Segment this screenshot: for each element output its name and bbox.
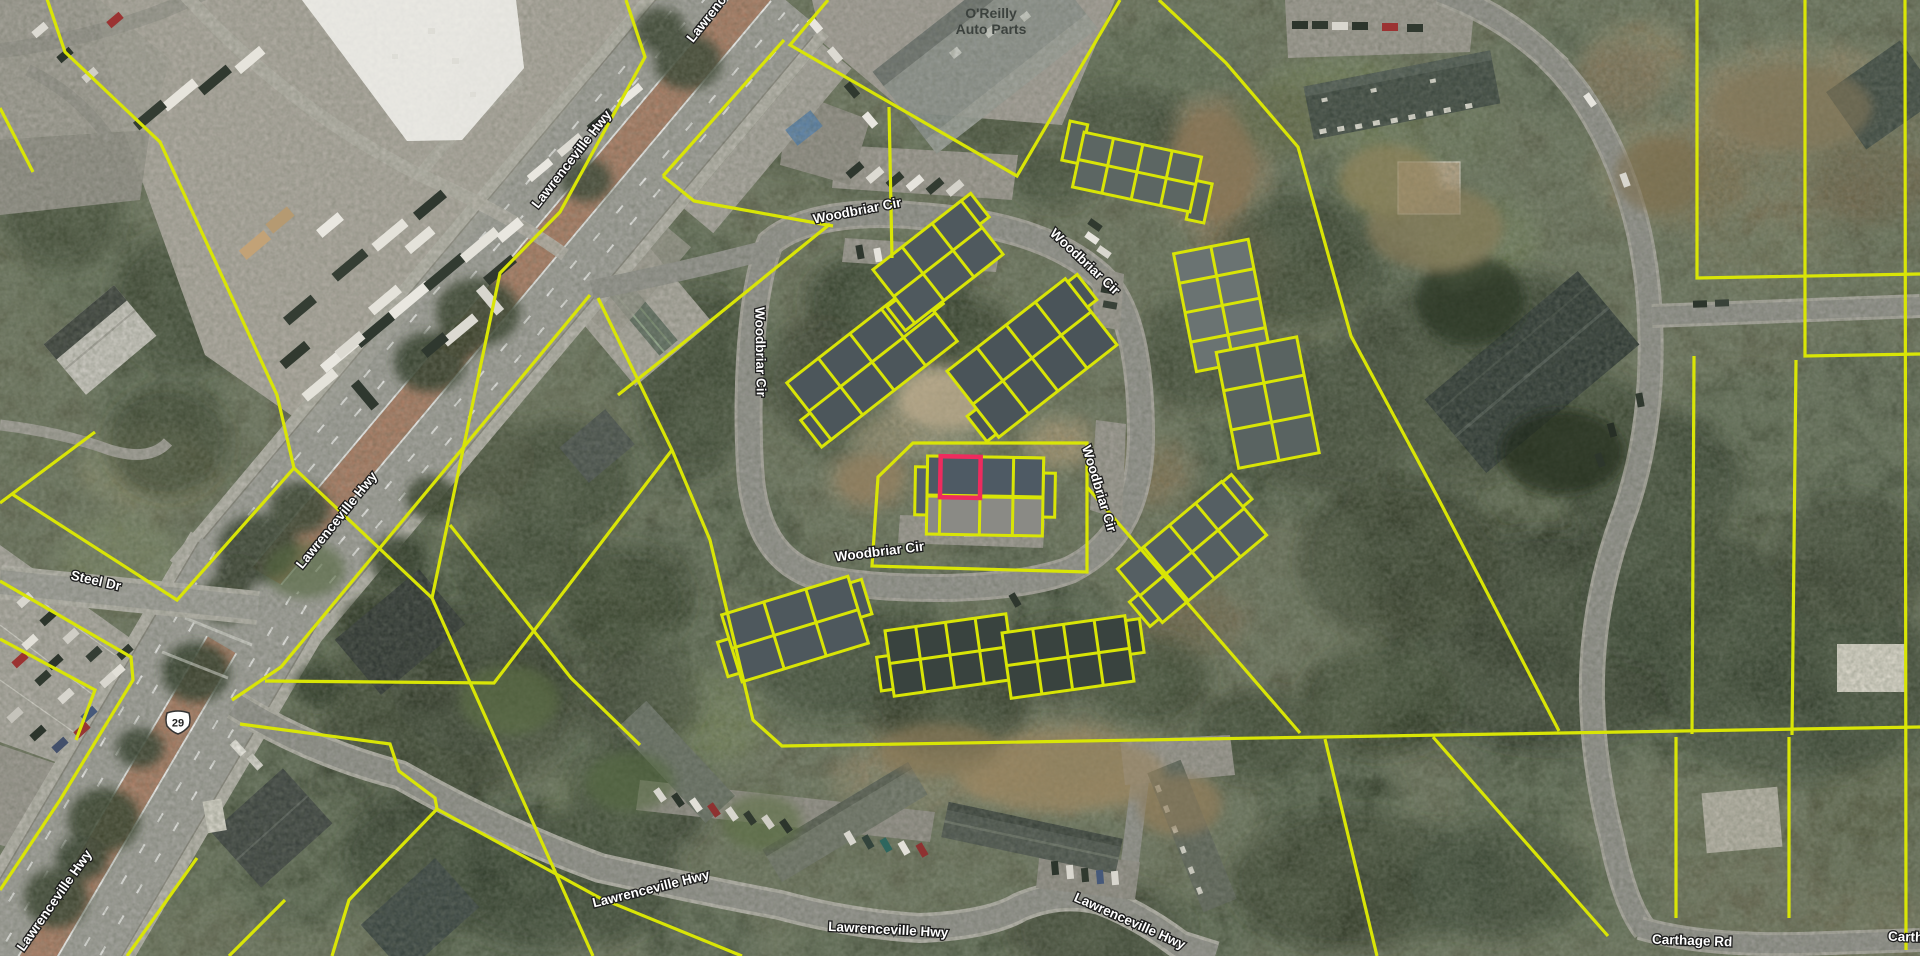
svg-text:O'Reilly: O'Reilly [965, 5, 1017, 21]
svg-text:Woodbriar Cir: Woodbriar Cir [752, 307, 769, 398]
svg-text:Auto Parts: Auto Parts [956, 21, 1027, 37]
svg-text:Carthage Rd: Carthage Rd [1652, 932, 1733, 950]
svg-text:Carthage Rd: Carthage Rd [1888, 929, 1920, 947]
svg-text:29: 29 [172, 718, 184, 730]
